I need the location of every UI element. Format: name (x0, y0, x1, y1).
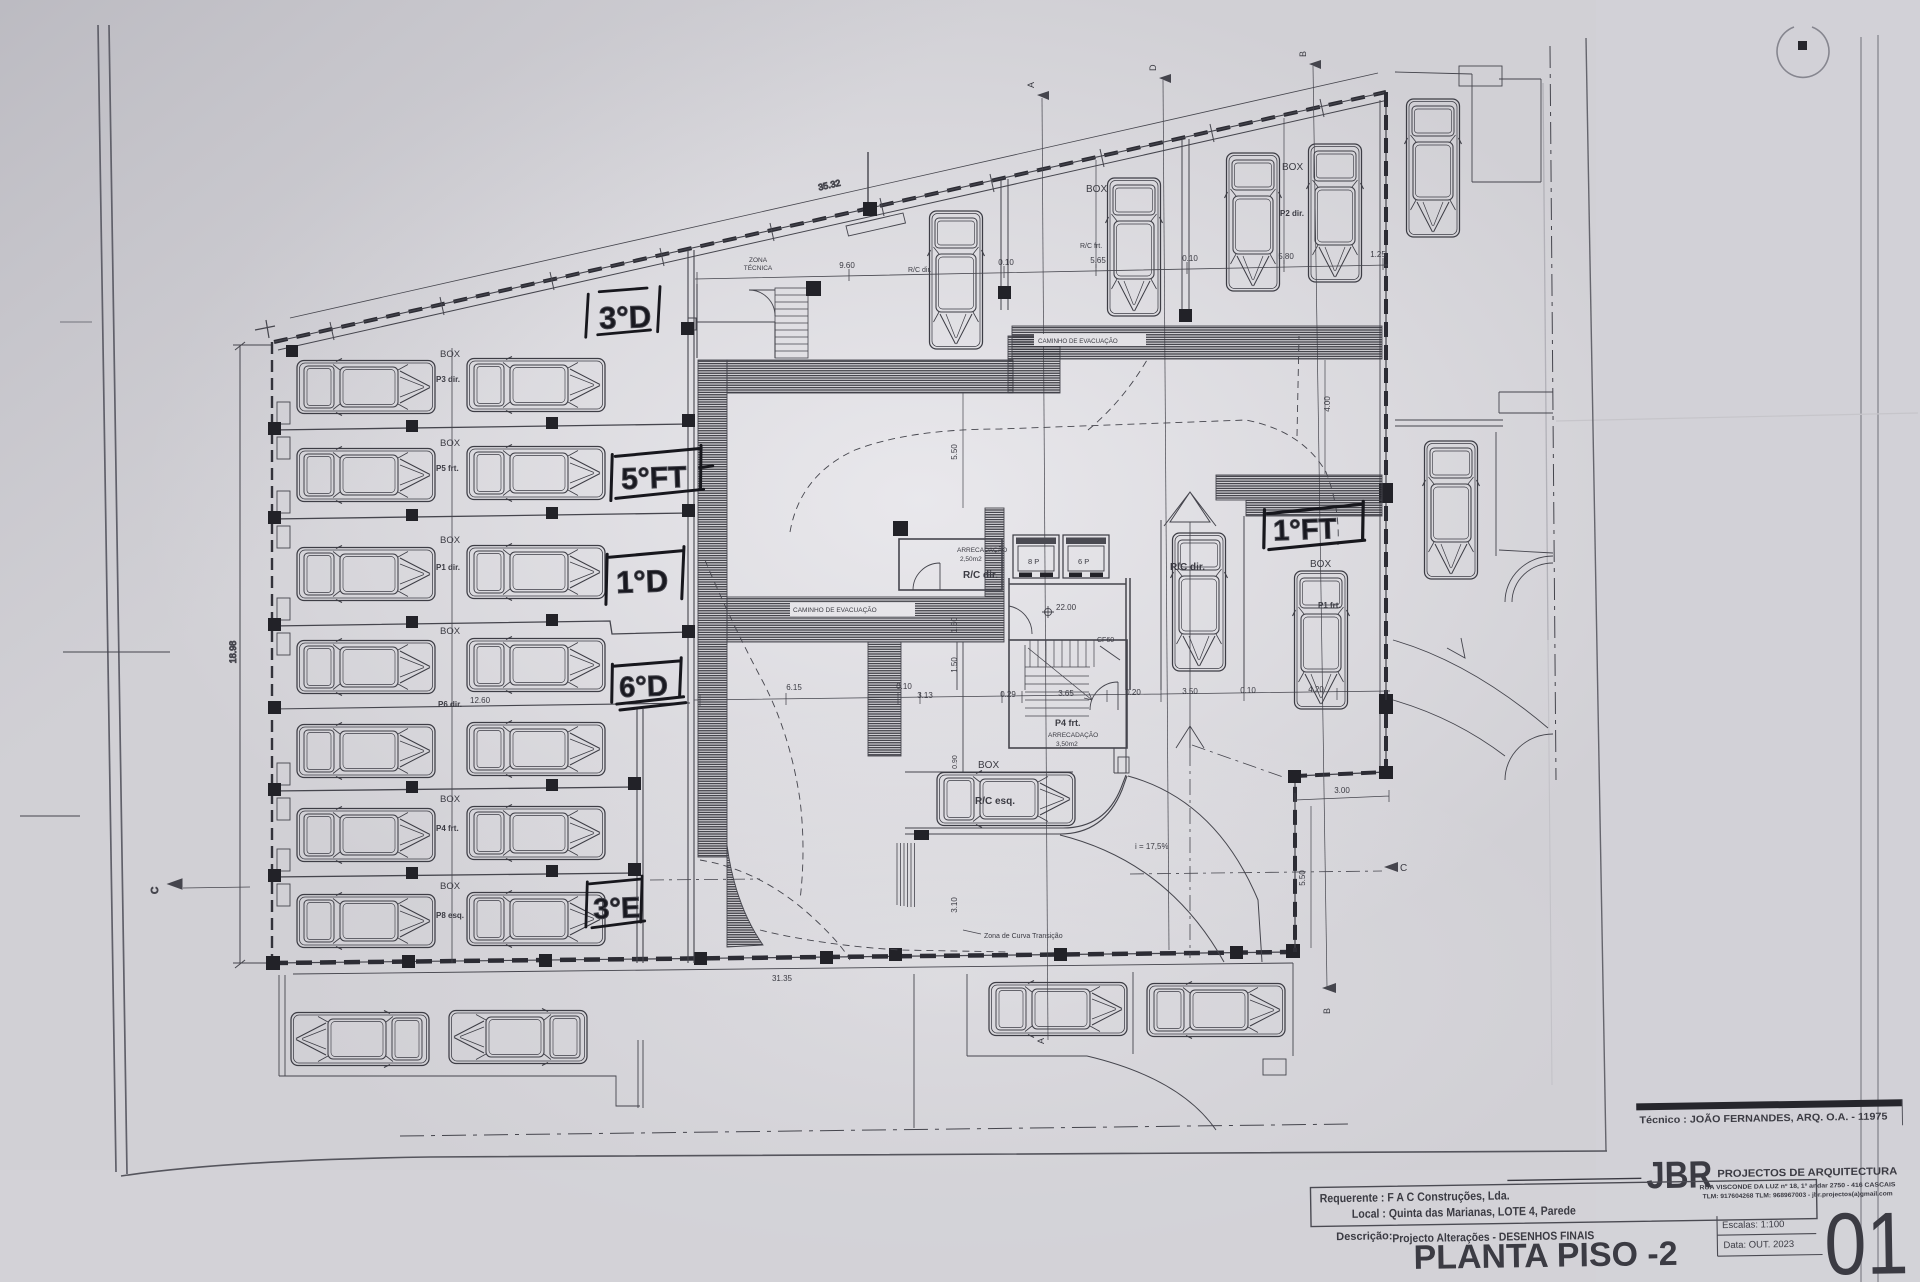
svg-text:0.29: 0.29 (1000, 690, 1016, 699)
svg-text:8 P: 8 P (1028, 557, 1039, 566)
svg-text:C: C (150, 887, 161, 894)
svg-text:0.10: 0.10 (1182, 254, 1198, 263)
svg-text:ARRECADAÇÃO: ARRECADAÇÃO (1048, 730, 1098, 739)
svg-text:01: 01 (1824, 1193, 1910, 1282)
svg-text:3.13: 3.13 (917, 691, 933, 700)
svg-text:0.20: 0.20 (1125, 688, 1141, 697)
svg-text:1°D: 1°D (616, 563, 669, 600)
svg-text:0.10: 0.10 (1240, 686, 1256, 695)
svg-text:A: A (1036, 1038, 1046, 1044)
svg-text:BOX: BOX (440, 794, 461, 805)
svg-text:R/C dir.: R/C dir. (1170, 562, 1205, 573)
svg-text:31.35: 31.35 (772, 974, 793, 983)
svg-text:12.60: 12.60 (470, 696, 491, 705)
svg-text:Escalas: 1:100: Escalas: 1:100 (1722, 1219, 1784, 1231)
svg-text:BOX: BOX (440, 535, 461, 546)
svg-text:R/C dir.: R/C dir. (963, 570, 998, 581)
svg-text:5°FT: 5°FT (621, 461, 687, 496)
svg-text:R/C esq.: R/C esq. (975, 796, 1015, 807)
svg-text:22.00: 22.00 (1056, 603, 1077, 612)
svg-text:CAMINHO DE EVACUAÇÃO: CAMINHO DE EVACUAÇÃO (1038, 338, 1118, 345)
svg-text:CAMINHO DE EVACUAÇÃO: CAMINHO DE EVACUAÇÃO (793, 605, 877, 614)
svg-text:P1 frt.: P1 frt. (1318, 601, 1341, 610)
svg-text:A: A (1026, 82, 1036, 88)
svg-text:BOX: BOX (440, 438, 461, 449)
svg-text:BOX: BOX (978, 760, 999, 771)
svg-text:P4 frt.: P4 frt. (436, 824, 459, 833)
svg-text:3.00: 3.00 (1334, 786, 1350, 795)
svg-text:6°D: 6°D (619, 670, 669, 704)
svg-text:0.10: 0.10 (998, 258, 1014, 267)
svg-text:5.65: 5.65 (1090, 256, 1106, 265)
svg-text:P5 frt.: P5 frt. (436, 464, 459, 473)
svg-text:Data: OUT. 2023: Data: OUT. 2023 (1723, 1239, 1794, 1251)
svg-text:P4 frt.: P4 frt. (1055, 718, 1081, 728)
svg-text:3,50m2: 3,50m2 (1056, 741, 1078, 748)
svg-text:TÉCNICA: TÉCNICA (744, 263, 773, 272)
svg-text:BOX: BOX (440, 881, 461, 892)
svg-text:B: B (1298, 51, 1308, 57)
svg-text:3.65: 3.65 (1058, 689, 1074, 698)
svg-text:B: B (1322, 1008, 1332, 1014)
svg-text:5.80: 5.80 (1278, 252, 1294, 261)
svg-text:0.10: 0.10 (896, 682, 912, 691)
svg-text:2,50m2: 2,50m2 (960, 556, 982, 563)
svg-text:4.00: 4.00 (1323, 396, 1332, 412)
svg-text:ARRECADAÇÃO: ARRECADAÇÃO (957, 545, 1007, 554)
svg-text:Zona de Curva Transição: Zona de Curva Transição (984, 933, 1063, 940)
svg-text:18.98: 18.98 (228, 641, 238, 664)
svg-text:i = 17,5%: i = 17,5% (1135, 842, 1169, 851)
svg-text:BOX: BOX (440, 626, 461, 637)
svg-text:3.50: 3.50 (1182, 687, 1198, 696)
svg-text:BOX: BOX (1282, 162, 1303, 173)
svg-text:3°D: 3°D (598, 299, 651, 336)
svg-text:P1 dir.: P1 dir. (436, 563, 460, 572)
svg-text:BOX: BOX (440, 349, 461, 360)
svg-text:4.20: 4.20 (1308, 685, 1324, 694)
svg-text:6 P: 6 P (1078, 557, 1089, 566)
svg-text:R/C frt.: R/C frt. (1080, 243, 1102, 250)
svg-text:P3 dir.: P3 dir. (436, 375, 460, 384)
svg-text:1°FT: 1°FT (1273, 513, 1338, 547)
svg-text:3.10: 3.10 (950, 897, 959, 913)
svg-text:R/C dir.: R/C dir. (908, 267, 931, 274)
svg-text:C: C (1400, 863, 1407, 874)
svg-text:Descrição:: Descrição: (1336, 1230, 1392, 1243)
svg-text:6.15: 6.15 (786, 683, 802, 692)
svg-text:1.25: 1.25 (1370, 250, 1386, 259)
svg-text:9.60: 9.60 (839, 261, 855, 270)
svg-text:1.50: 1.50 (950, 657, 959, 673)
svg-text:PLANTA PISO -2: PLANTA PISO -2 (1413, 1235, 1678, 1277)
svg-text:BOX: BOX (1086, 184, 1107, 195)
svg-text:P6 dir.: P6 dir. (438, 700, 462, 709)
svg-text:P2 dir.: P2 dir. (1280, 209, 1304, 218)
svg-text:BOX: BOX (1310, 559, 1331, 570)
svg-text:5.50: 5.50 (950, 444, 959, 460)
svg-text:3°E: 3°E (593, 892, 641, 926)
svg-text:1.50: 1.50 (950, 617, 959, 633)
svg-text:5.50: 5.50 (1298, 870, 1307, 886)
svg-text:Requerente : F A C Construçõe: Requerente : F A C Construções, Lda. (1320, 1188, 1510, 1205)
svg-text:D: D (1148, 64, 1158, 71)
svg-text:CF60: CF60 (1097, 637, 1114, 644)
svg-text:ZONA: ZONA (749, 257, 768, 264)
svg-text:P8 esq.: P8 esq. (436, 911, 464, 920)
svg-text:0.90: 0.90 (952, 755, 959, 769)
